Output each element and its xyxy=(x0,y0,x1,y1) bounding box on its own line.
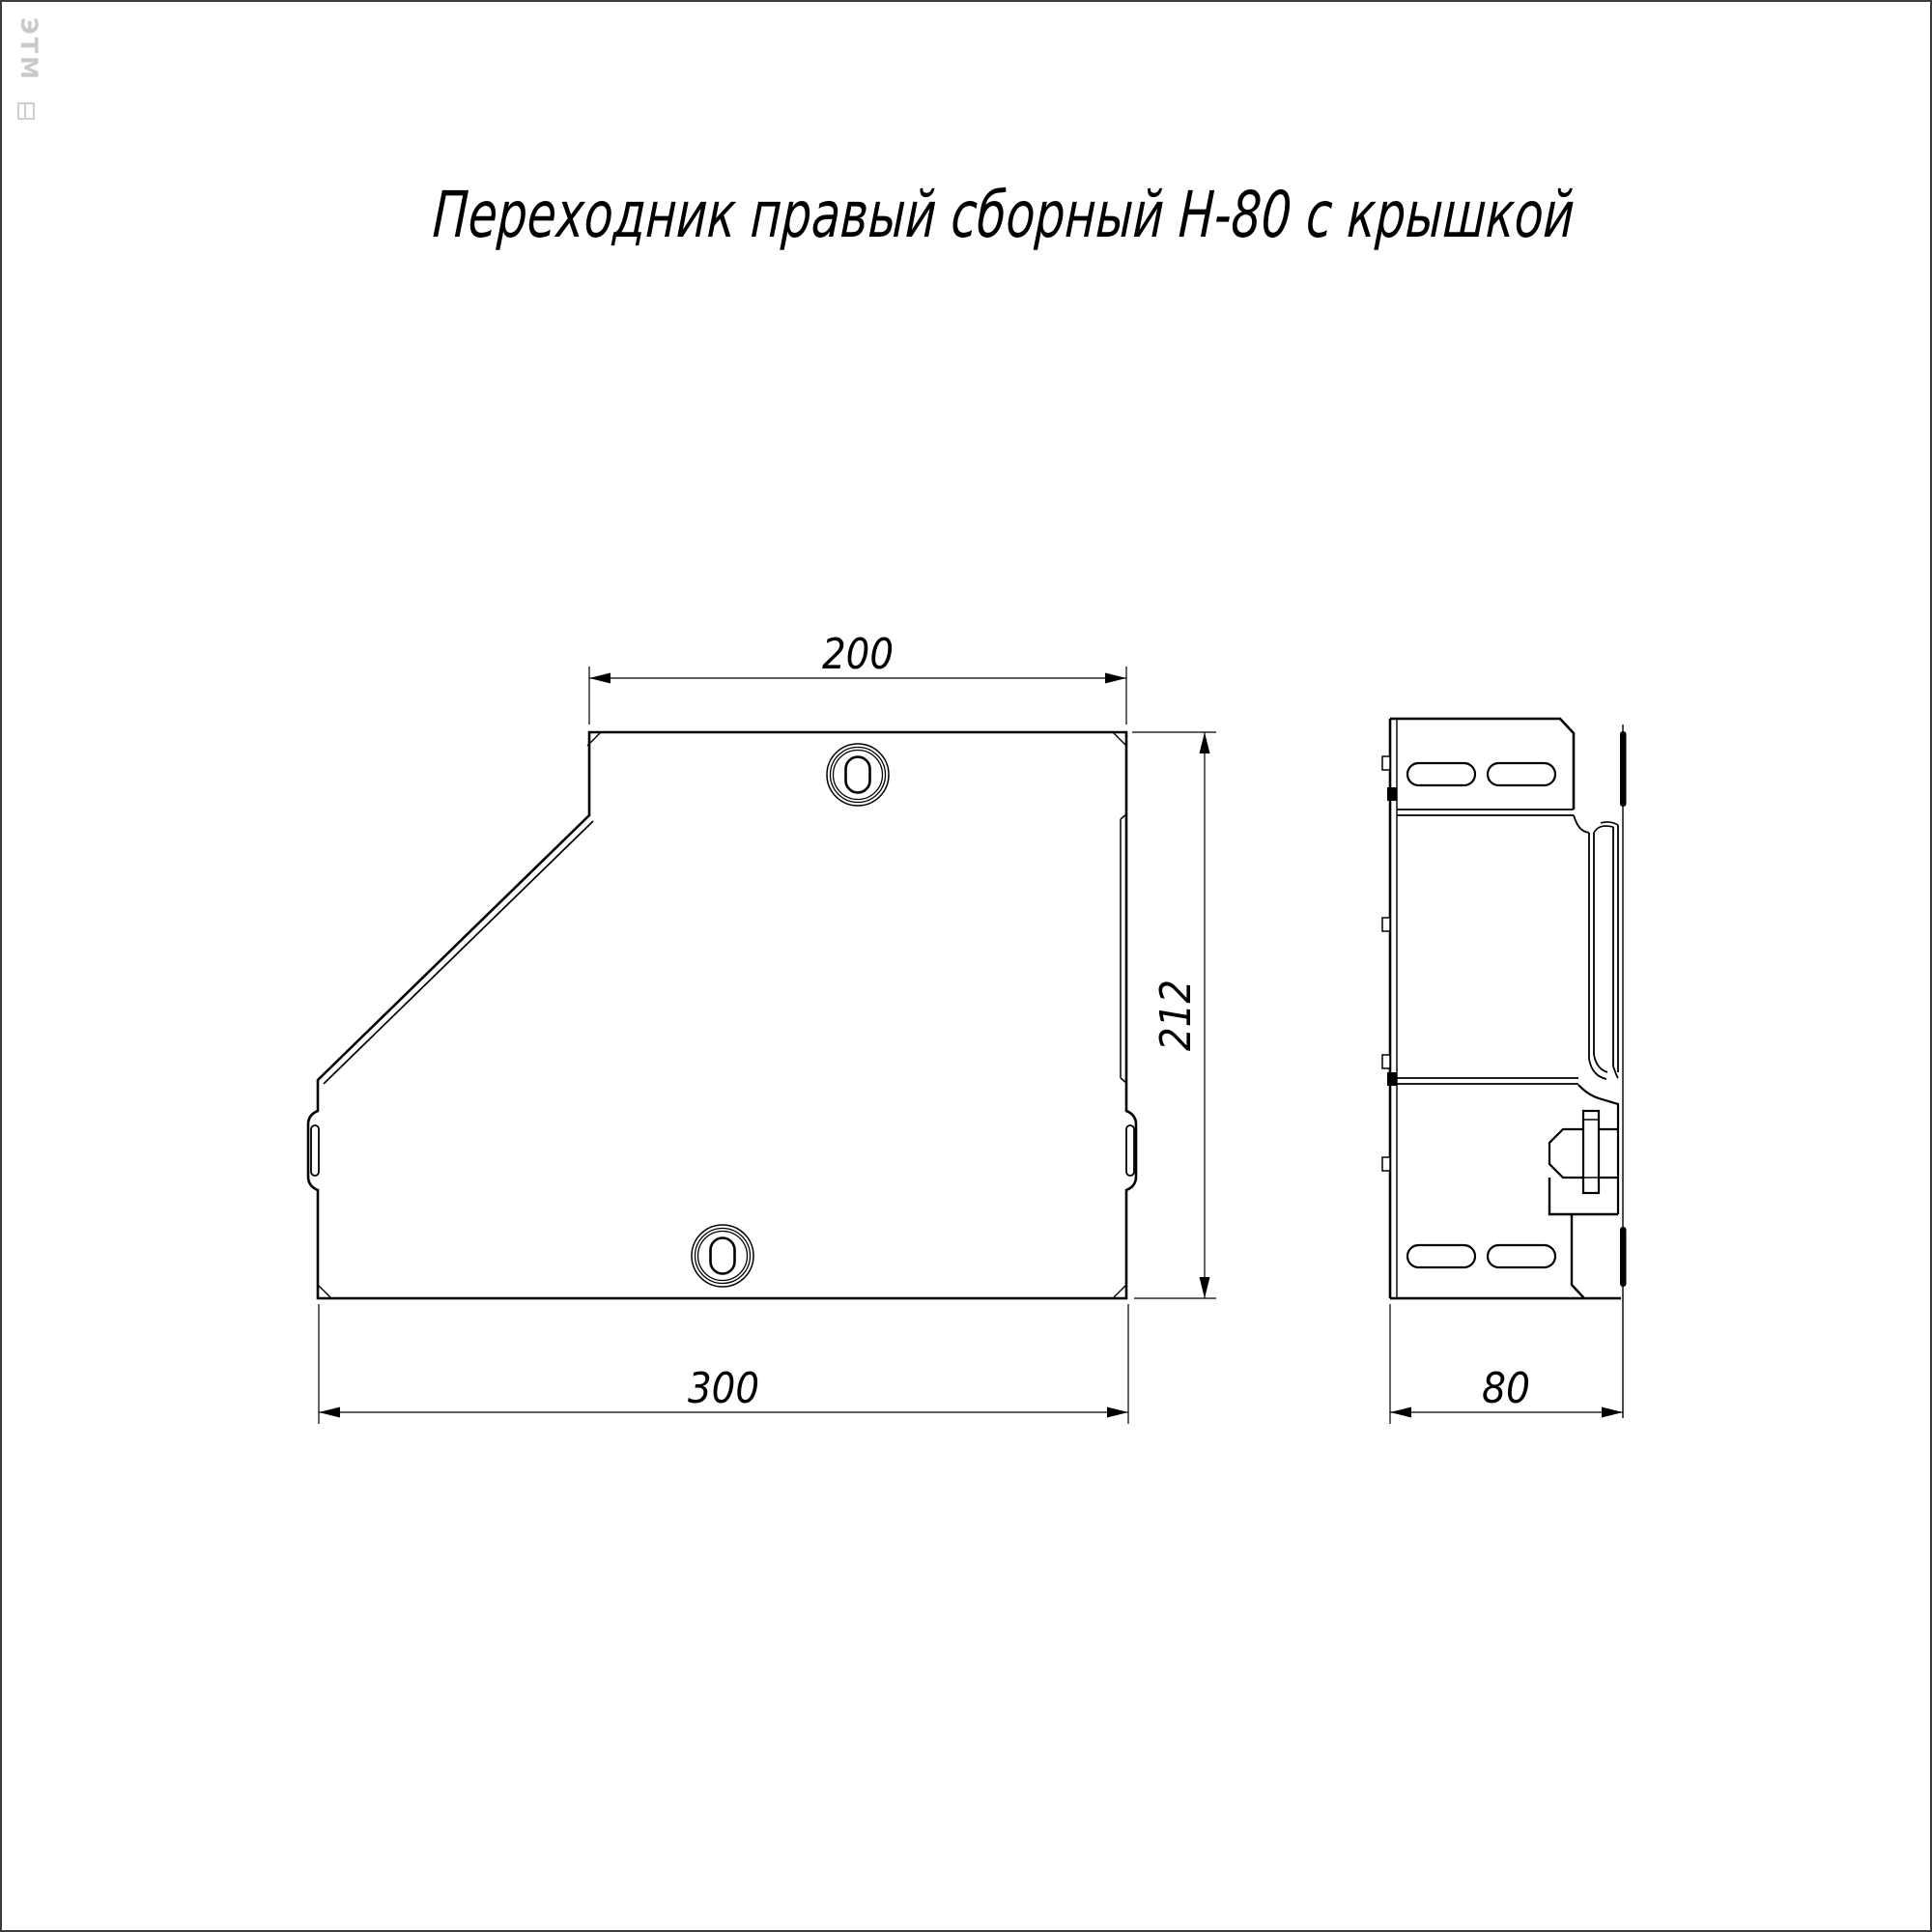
bottom-flange-outline xyxy=(1390,1178,1621,1298)
top-flange-slot-right xyxy=(1488,763,1555,785)
middle-fold-lines xyxy=(1397,1078,1578,1084)
dim-label-80: 80 xyxy=(1482,1364,1530,1413)
dimension-bottom-width: 300 xyxy=(319,1304,1128,1424)
bend-inner-line xyxy=(324,821,593,1084)
left-connector-slot xyxy=(311,1125,319,1176)
corner-ticks xyxy=(318,732,1126,1298)
dim-label-200: 200 xyxy=(822,630,894,679)
latch-bar xyxy=(1583,1111,1599,1193)
keyhole-fastener-bottom xyxy=(692,1225,753,1287)
drawing-sheet: ЭТМ Переходник правый сборный Н-80 с кры… xyxy=(0,0,1932,1932)
dimension-top-width: 200 xyxy=(589,630,1126,724)
latch-assembly xyxy=(1549,1111,1618,1193)
top-flange-slot-left xyxy=(1407,763,1475,785)
rail-section-mark-bottom xyxy=(1620,1227,1627,1287)
front-view-outline xyxy=(308,732,1136,1298)
bottom-flange-slot-right xyxy=(1488,1245,1555,1267)
drawing-canvas: 200 212 300 80 xyxy=(2,2,1932,1932)
keyhole-fastener-top xyxy=(827,744,889,806)
dimension-height: 212 xyxy=(1132,732,1216,1298)
dim-label-212: 212 xyxy=(1151,980,1201,1051)
cover-profile xyxy=(1574,815,1618,1079)
front-view xyxy=(308,732,1136,1298)
dimension-side-width: 80 xyxy=(1390,1304,1623,1424)
fold-junction-mark-top xyxy=(1387,787,1397,801)
dim-label-300: 300 xyxy=(688,1364,759,1413)
top-flange-fold-lines xyxy=(1397,810,1574,815)
bottom-flange-slot-left xyxy=(1407,1245,1475,1267)
fold-junction-mark-bottom xyxy=(1387,1072,1397,1086)
right-connector-slot xyxy=(1126,1125,1134,1176)
rail-section-mark-top xyxy=(1620,731,1627,807)
side-view xyxy=(1382,719,1627,1418)
